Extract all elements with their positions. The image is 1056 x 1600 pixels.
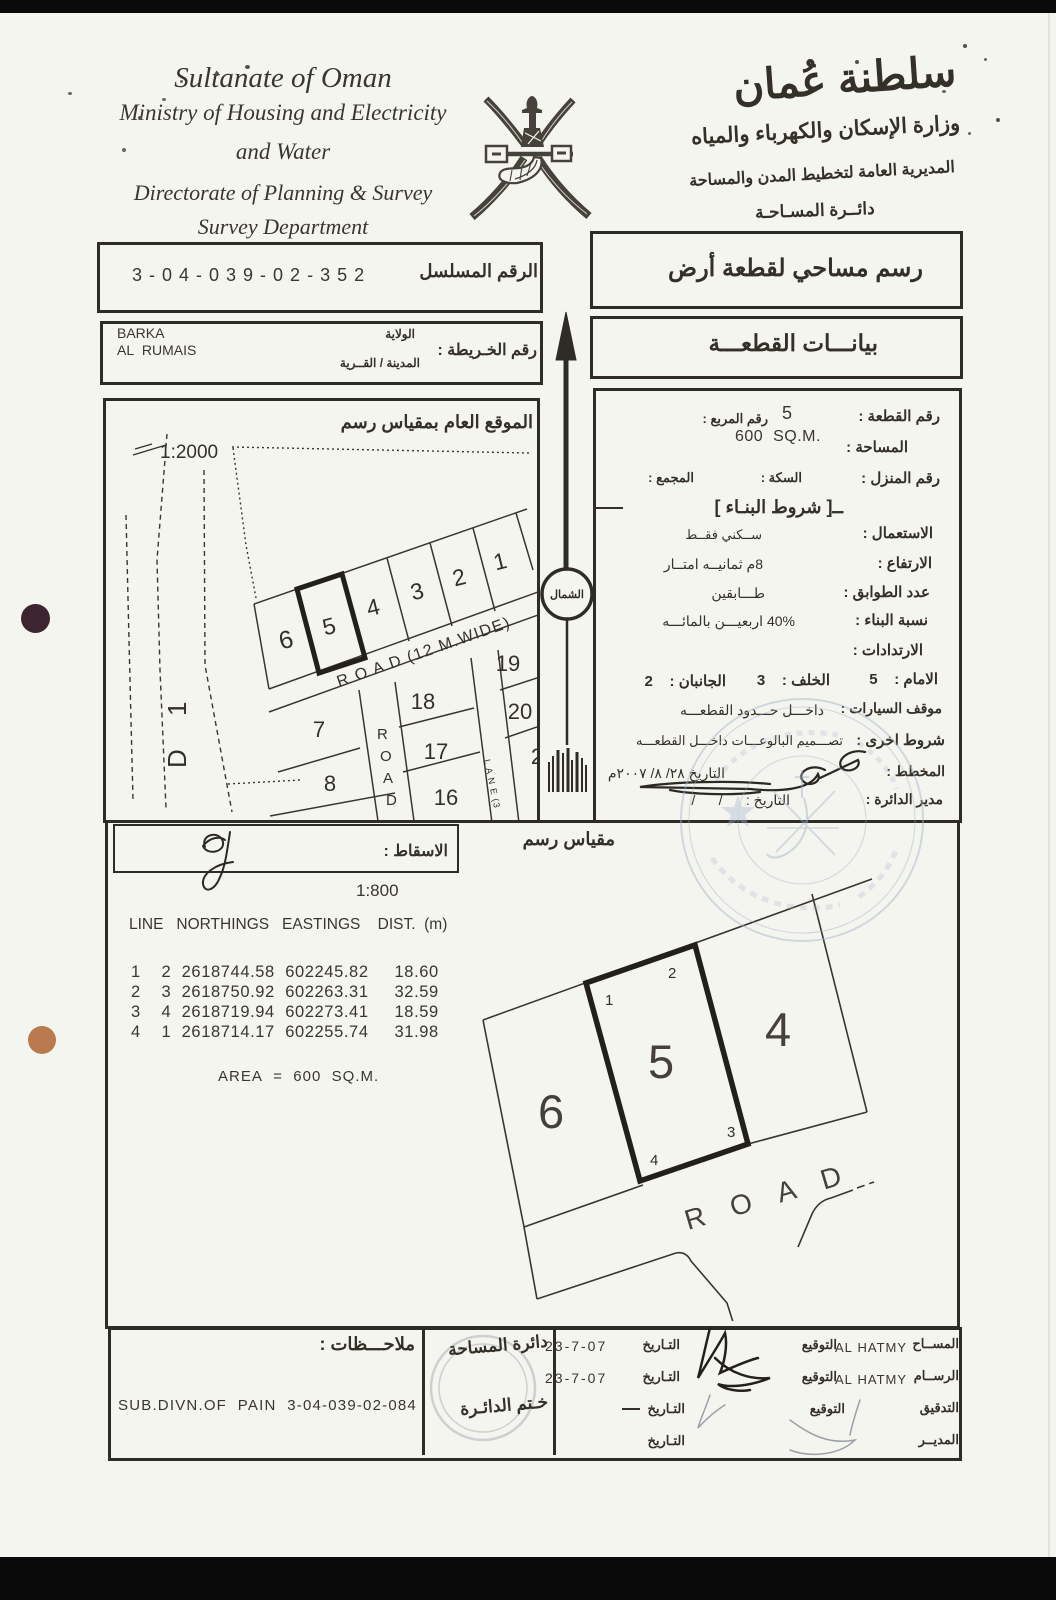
svg-text:R: R: [377, 726, 388, 743]
svg-text:4: 4: [364, 593, 383, 621]
svg-text:2: 2: [450, 563, 469, 591]
svg-text:D 1: D 1: [162, 689, 192, 768]
svg-text:19: 19: [496, 651, 520, 676]
svg-text:3: 3: [727, 1124, 735, 1141]
svg-text:20: 20: [508, 699, 532, 724]
svg-text:O: O: [380, 748, 392, 765]
svg-text:3: 3: [408, 577, 427, 605]
svg-text:1:2000: 1:2000: [160, 442, 218, 463]
svg-text:4: 4: [765, 1003, 791, 1056]
svg-text:6: 6: [276, 625, 296, 656]
svg-text:8: 8: [324, 771, 336, 796]
svg-text:D: D: [386, 792, 397, 809]
svg-text:الشمال: الشمال: [550, 589, 584, 601]
svg-text:L A N E (3: L A N E (3: [482, 758, 502, 809]
svg-text:1: 1: [491, 547, 510, 575]
svg-text:2: 2: [668, 965, 676, 982]
svg-text:16: 16: [434, 785, 458, 810]
svg-text:17: 17: [424, 739, 448, 764]
svg-text:1: 1: [605, 992, 613, 1009]
svg-text:5: 5: [320, 612, 339, 640]
svg-text:18: 18: [411, 689, 435, 714]
svg-text:5: 5: [648, 1035, 674, 1088]
svg-text:7: 7: [313, 717, 325, 742]
svg-text:الموقع العام بمقياس رسم: الموقع العام بمقياس رسم: [341, 412, 533, 433]
svg-text:6: 6: [538, 1085, 564, 1138]
svg-text:4: 4: [650, 1152, 658, 1169]
svg-text:A: A: [383, 770, 393, 787]
